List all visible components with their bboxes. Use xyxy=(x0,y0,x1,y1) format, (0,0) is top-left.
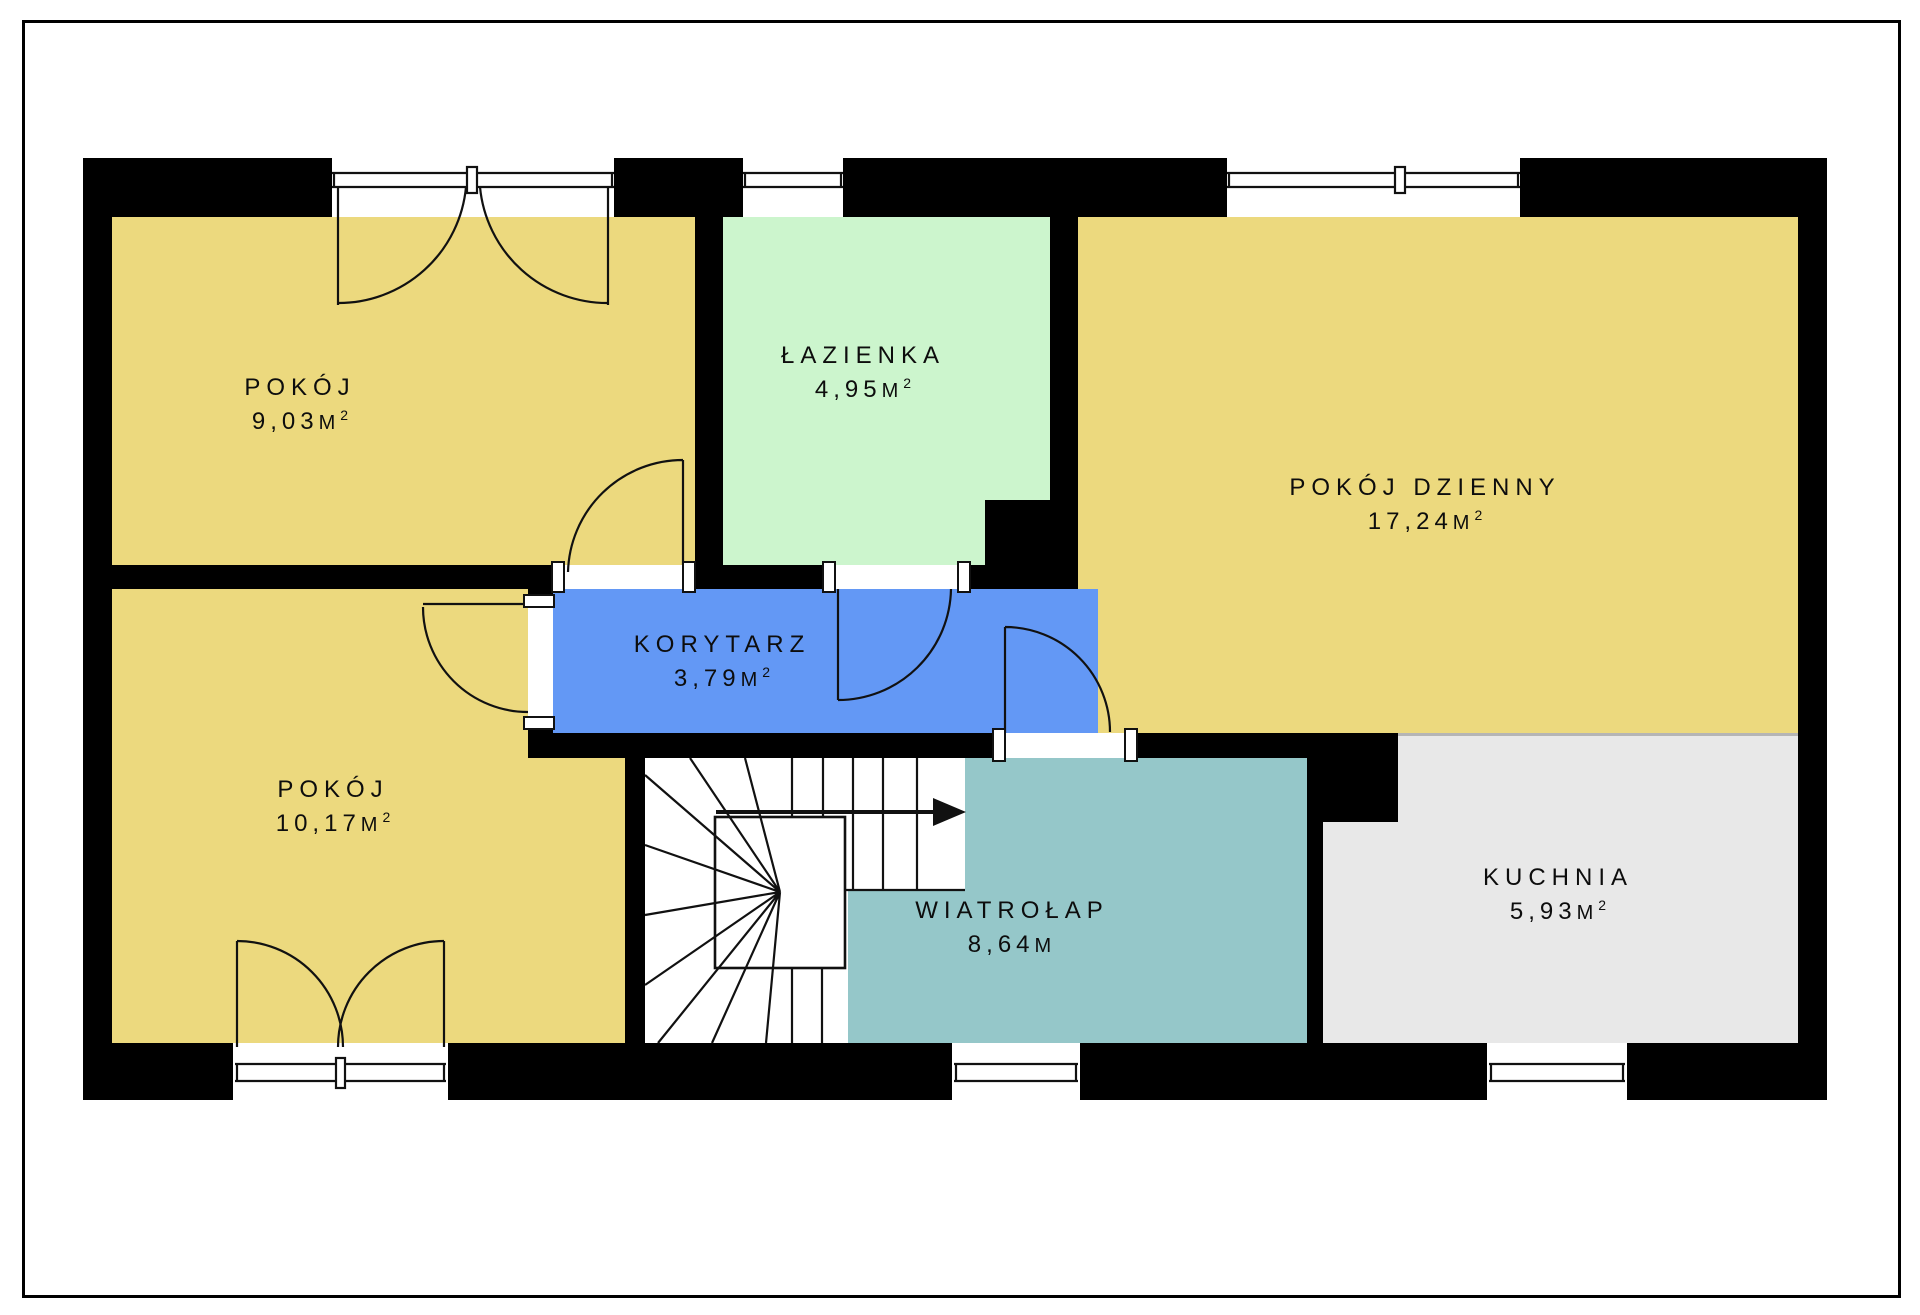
room-area: 17,24M2 xyxy=(1289,508,1560,538)
door-swing-pokoj-top xyxy=(568,460,683,572)
door-swing-pokoj-bottom xyxy=(423,604,528,712)
window-frame-pokoj-dzienny xyxy=(1227,167,1520,193)
room-name: POKÓJ DZIENNY xyxy=(1289,474,1560,502)
window-frame-kuchnia xyxy=(1489,1064,1625,1081)
room-label-wiatrolap: WIATROŁAP 8,64M xyxy=(915,897,1109,961)
door-swing-wiatrolap xyxy=(1005,627,1110,733)
room-name: POKÓJ xyxy=(244,374,355,402)
room-area: 3,79M2 xyxy=(634,665,810,695)
room-area: 9,03M2 xyxy=(244,408,355,438)
balcony-door-swing xyxy=(235,941,446,1088)
room-label-pokoj-top: POKÓJ 9,03M2 xyxy=(244,374,355,438)
room-label-kuchnia: KUCHNIA 5,93M2 xyxy=(1483,864,1633,928)
window-frame-lazienka xyxy=(743,173,843,187)
room-area: 5,93M2 xyxy=(1483,898,1633,928)
plan-linework xyxy=(0,0,1920,1315)
entrance-door-frame xyxy=(954,1064,1078,1081)
room-name: POKÓJ xyxy=(276,776,391,804)
stair-direction-arrow xyxy=(716,798,966,826)
room-label-pokoj-bottom: POKÓJ 10,17M2 xyxy=(276,776,391,840)
room-area: 8,64M xyxy=(915,931,1109,961)
room-name: ŁAZIENKA xyxy=(781,342,945,370)
room-name: KORYTARZ xyxy=(634,631,810,659)
room-label-pokoj-dzienny: POKÓJ DZIENNY 17,24M2 xyxy=(1289,474,1560,538)
door-swing-lazienka xyxy=(838,589,951,700)
room-area: 4,95M2 xyxy=(781,376,945,406)
door-jambs xyxy=(524,562,1137,761)
room-label-lazienka: ŁAZIENKA 4,95M2 xyxy=(781,342,945,406)
room-name: KUCHNIA xyxy=(1483,864,1633,892)
window-frame-pokoj-top xyxy=(332,167,614,305)
room-name: WIATROŁAP xyxy=(915,897,1109,925)
room-area: 10,17M2 xyxy=(276,810,391,840)
room-label-korytarz: KORYTARZ 3,79M2 xyxy=(634,631,810,695)
